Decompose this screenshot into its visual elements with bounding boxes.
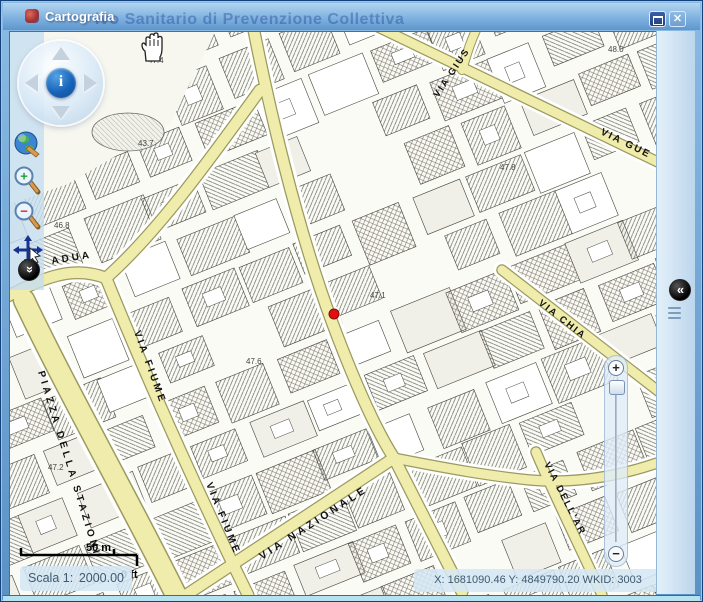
pan-south-arrow[interactable] [52,106,70,119]
scale-meters-label: 50 m [86,542,111,554]
zoom-slider[interactable]: + − [604,355,628,567]
elevation-label: 43.7 [138,139,154,148]
zoom-in-button[interactable]: + [13,165,43,195]
scale-readout: Scala 1: 2000.00 [20,566,132,591]
zoom-out-icon: − [13,200,41,230]
side-panel-collapsed[interactable] [656,31,695,594]
coordinate-readout: X: 1681090.46 Y: 4849790.20 WKID: 3003 [414,569,656,592]
elevation-label: 47.1 [370,291,386,300]
map-canvas[interactable]: ADUA PIAZZA DELLA STAZIONI VIA FIUME VIA… [10,32,656,595]
zoom-in-icon: + [13,165,41,195]
window-bottom-frame [3,595,700,602]
zoom-out-button[interactable]: − [13,200,43,230]
location-marker[interactable] [329,309,339,319]
elevation-label: 47.2 [48,463,64,472]
app-icon [25,9,39,23]
svg-text:+: + [20,169,28,184]
pan-north-arrow[interactable] [52,47,70,60]
title-bar[interactable]: ivo Sanitario di Prevenzione Collettiva … [3,3,700,30]
close-button[interactable]: ✕ [669,11,686,27]
cartografia-window: ivo Sanitario di Prevenzione Collettiva … [0,0,703,602]
panel-grip-icon[interactable] [668,304,681,322]
zoom-slider-thumb[interactable] [609,380,625,395]
elevation-label: 48.0 [608,45,624,54]
background-page-heading: ivo Sanitario di Prevenzione Collettiva [95,11,404,29]
pan-east-arrow[interactable] [84,74,97,92]
zoom-slider-minus-button[interactable]: − [608,546,624,562]
zoom-slider-track[interactable] [615,382,617,542]
panel-collapse-button[interactable]: « [669,279,691,301]
restore-button[interactable] [649,11,666,27]
svg-text:−: − [20,204,28,219]
window-title: Cartografia [45,9,114,24]
elevation-label: 47.8 [500,163,516,172]
scale-label: Scala 1: [28,566,73,591]
toolbar-collapse-button[interactable]: « [18,259,40,281]
elevation-label: 46.8 [54,221,70,230]
elevation-label: 47.6 [246,357,262,366]
scale-value: 2000.00 [79,566,124,591]
map-viewport[interactable]: ADUA PIAZZA DELLA STAZIONI VIA FIUME VIA… [9,31,656,595]
pan-compass[interactable]: i [19,41,103,125]
globe-icon [13,130,43,160]
pan-west-arrow[interactable] [25,74,38,92]
chevron-down-icon: « [19,260,39,280]
full-extent-button[interactable] [13,130,43,160]
elevation-label: 47.4 [148,56,164,65]
zoom-slider-plus-button[interactable]: + [608,360,624,376]
info-button[interactable]: i [46,68,76,98]
restore-icon [653,16,663,25]
